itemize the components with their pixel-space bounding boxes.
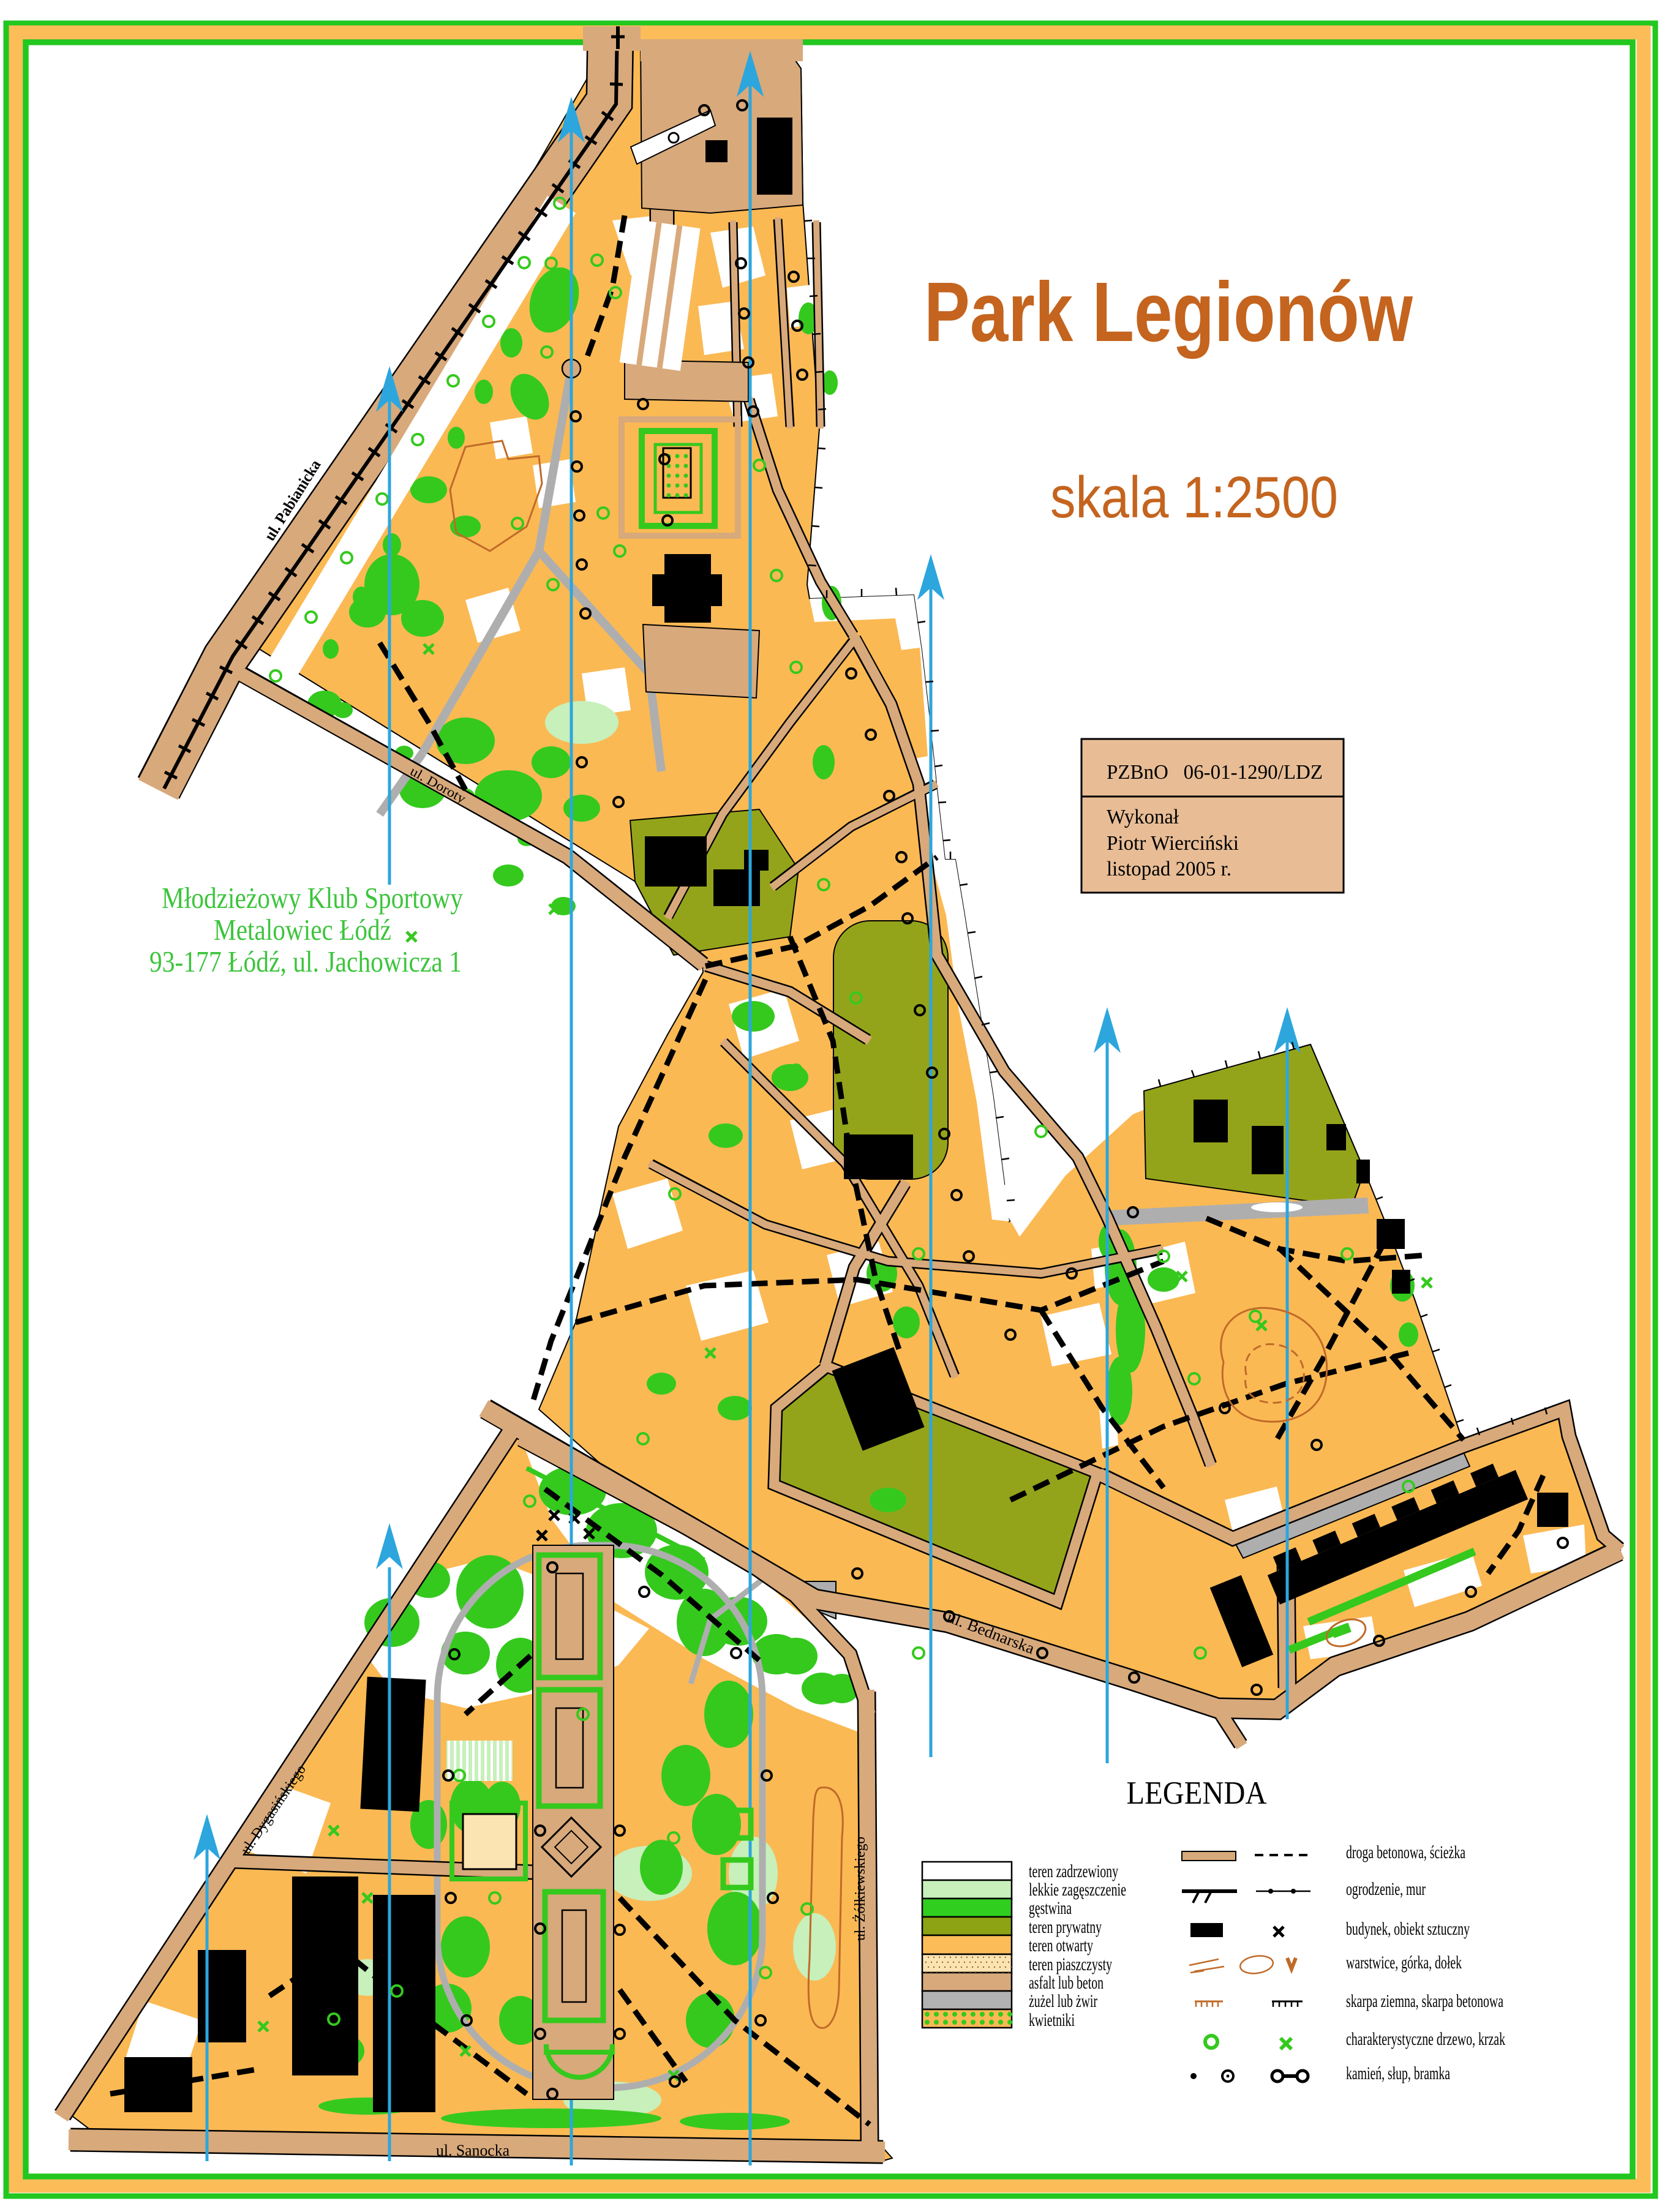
svg-text:droga betonowa, ścieżka: droga betonowa, ścieżka <box>1346 1842 1465 1862</box>
svg-text:kamień, słup, bramka: kamień, słup, bramka <box>1346 2063 1450 2083</box>
svg-text:Park Legionów: Park Legionów <box>924 265 1413 359</box>
svg-text:LEGENDA: LEGENDA <box>1127 1775 1267 1811</box>
svg-text:teren zadrzewiony: teren zadrzewiony <box>1029 1861 1118 1881</box>
svg-text:ul. Żółkiewskiego: ul. Żółkiewskiego <box>852 1837 868 1941</box>
svg-text:skarpa ziemna, skarpa betonowa: skarpa ziemna, skarpa betonowa <box>1346 1991 1503 2011</box>
svg-text:teren prywatny: teren prywatny <box>1029 1917 1102 1937</box>
svg-text:charakterystyczne drzewo, krza: charakterystyczne drzewo, krzak <box>1346 2029 1505 2049</box>
svg-text:warstwice, górka, dołek: warstwice, górka, dołek <box>1346 1952 1462 1973</box>
svg-text:Piotr Wierciński: Piotr Wierciński <box>1107 832 1239 855</box>
svg-text:gęstwina: gęstwina <box>1029 1898 1072 1918</box>
svg-text:teren piaszczysty: teren piaszczysty <box>1029 1954 1112 1974</box>
svg-text:PZBnO 06-01-1290/LDZ: PZBnO 06-01-1290/LDZ <box>1107 761 1323 784</box>
svg-text:kwietniki: kwietniki <box>1029 2010 1075 2030</box>
svg-text:asfalt lub beton: asfalt lub beton <box>1029 1973 1104 1993</box>
svg-text:lekkie zagęszczenie: lekkie zagęszczenie <box>1029 1880 1126 1900</box>
svg-text:żużel lub żwir: żużel lub żwir <box>1029 1991 1097 2011</box>
svg-text:skala 1:2500: skala 1:2500 <box>1050 465 1338 530</box>
svg-text:Metalowiec Łódź: Metalowiec Łódź <box>214 913 391 947</box>
svg-text:Młodzieżowy Klub Sportowy: Młodzieżowy Klub Sportowy <box>162 881 463 915</box>
svg-text:ul. Sanocka: ul. Sanocka <box>436 2142 510 2159</box>
svg-text:listopad 2005 r.: listopad 2005 r. <box>1107 858 1231 880</box>
svg-text:ogrodzenie, mur: ogrodzenie, mur <box>1346 1879 1426 1899</box>
svg-text:93-177 Łódź, ul. Jachowicza 1: 93-177 Łódź, ul. Jachowicza 1 <box>149 945 462 978</box>
svg-text:Wykonał: Wykonał <box>1107 806 1179 828</box>
svg-text:teren otwarty: teren otwarty <box>1029 1935 1093 1955</box>
svg-text:budynek, obiekt sztuczny: budynek, obiekt sztuczny <box>1346 1919 1470 1939</box>
